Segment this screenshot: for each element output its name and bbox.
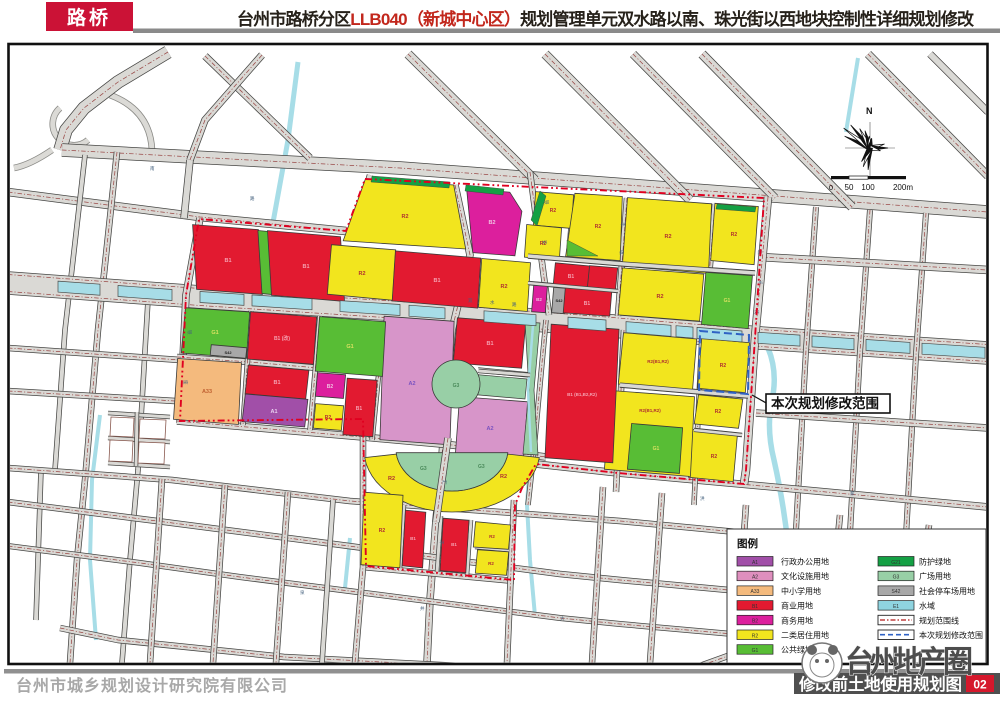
svg-text:水域: 水域 [919, 601, 935, 611]
svg-text:B1: B1 [273, 380, 280, 386]
svg-text:R2: R2 [489, 534, 495, 539]
svg-text:水: 水 [490, 299, 495, 305]
svg-text:S42: S42 [224, 350, 232, 355]
svg-text:R2: R2 [715, 409, 722, 415]
svg-text:E1: E1 [893, 604, 899, 610]
svg-text:安: 安 [541, 240, 548, 245]
svg-text:G21: G21 [891, 560, 901, 566]
svg-text:B2: B2 [752, 619, 758, 625]
svg-text:台州地产圈: 台州地产圈 [845, 645, 973, 679]
svg-text:B1: B1 [302, 264, 309, 270]
svg-text:G3: G3 [478, 464, 485, 470]
svg-text:S42: S42 [892, 589, 901, 595]
svg-text:200m: 200m [893, 183, 913, 192]
svg-text:本次规划修改范围: 本次规划修改范围 [771, 395, 879, 411]
svg-text:二类居住用地: 二类居住用地 [781, 630, 829, 640]
svg-text:R2: R2 [595, 224, 602, 230]
svg-text:G1: G1 [211, 330, 218, 336]
svg-text:A2: A2 [486, 426, 493, 432]
svg-text:洪: 洪 [700, 495, 705, 502]
svg-text:防护绿地: 防护绿地 [919, 557, 951, 567]
svg-text:G3: G3 [893, 575, 900, 581]
svg-text:B1: B1 [486, 341, 493, 347]
svg-text:B1: B1 [433, 278, 440, 284]
svg-text:G1: G1 [653, 446, 660, 452]
svg-text:A33: A33 [751, 589, 760, 595]
svg-text:井: 井 [420, 605, 425, 612]
svg-text:R2: R2 [379, 528, 386, 534]
svg-text:银: 银 [543, 200, 550, 205]
svg-text:路桥: 路桥 [67, 6, 111, 29]
svg-text:A1: A1 [270, 409, 277, 415]
svg-text:A2: A2 [752, 575, 758, 581]
svg-text:B2: B2 [327, 384, 334, 390]
svg-text:A1: A1 [752, 560, 758, 566]
svg-text:R2: R2 [488, 561, 494, 566]
svg-text:R2: R2 [550, 208, 557, 214]
svg-text:G1: G1 [752, 648, 759, 654]
svg-text:南: 南 [150, 165, 155, 171]
svg-text:路: 路 [512, 301, 517, 308]
svg-text:A33: A33 [202, 389, 212, 395]
svg-text:文化设施用地: 文化设施用地 [781, 571, 829, 581]
svg-text:图例: 图例 [737, 537, 758, 550]
svg-text:台州市路桥分区LLB040（新城中心区）规划管理单元双水路以: 台州市路桥分区LLB040（新城中心区）规划管理单元双水路以南、珠光街以西地块控… [237, 9, 975, 29]
svg-text:N: N [866, 106, 873, 116]
svg-text:本次规划修改范围: 本次规划修改范围 [919, 630, 983, 640]
svg-text:G1: G1 [346, 344, 353, 350]
svg-text:B1: B1 [410, 536, 416, 541]
svg-text:中小学用地: 中小学用地 [781, 586, 821, 596]
svg-text:B1: B1 [451, 542, 457, 547]
svg-text:B1 (改): B1 (改) [274, 335, 290, 342]
svg-text:R2: R2 [752, 633, 759, 639]
svg-text:丰: 丰 [619, 222, 626, 227]
svg-text:R2: R2 [388, 476, 395, 482]
svg-text:B1 (B1,B2,R2): B1 (B1,B2,R2) [567, 392, 597, 397]
svg-text:R2: R2 [500, 474, 507, 480]
svg-text:0: 0 [829, 183, 833, 192]
svg-text:R2(B1,R2): R2(B1,R2) [647, 359, 669, 364]
svg-text:R2: R2 [720, 363, 727, 369]
svg-text:R2: R2 [358, 271, 365, 277]
svg-text:台州市城乡规划设计研究院有限公司: 台州市城乡规划设计研究院有限公司 [16, 676, 288, 695]
svg-text:B2: B2 [488, 220, 495, 226]
svg-text:B1: B1 [752, 604, 758, 610]
svg-text:收: 收 [618, 250, 625, 255]
svg-text:家: 家 [850, 490, 855, 496]
svg-text:B1: B1 [584, 301, 591, 307]
svg-text:R2: R2 [731, 232, 738, 238]
svg-text:泉: 泉 [300, 589, 305, 595]
svg-text:路: 路 [250, 195, 255, 202]
svg-text:行政办公用地: 行政办公用地 [781, 557, 829, 567]
svg-text:100: 100 [861, 183, 875, 192]
svg-text:B2: B2 [536, 297, 542, 302]
svg-text:规划范围线: 规划范围线 [919, 615, 959, 625]
svg-text:R2: R2 [656, 294, 663, 300]
svg-text:G1: G1 [724, 298, 731, 304]
svg-text:S42: S42 [555, 298, 563, 303]
svg-text:R2: R2 [401, 214, 408, 220]
svg-text:50: 50 [845, 183, 854, 192]
svg-text:B1: B1 [356, 406, 363, 412]
svg-text:A2: A2 [408, 381, 415, 387]
svg-text:B1: B1 [224, 258, 231, 264]
svg-text:R2: R2 [500, 284, 507, 290]
svg-text:广场用地: 广场用地 [919, 571, 951, 581]
svg-text:汇: 汇 [441, 480, 448, 485]
svg-text:R2(B1,R2): R2(B1,R2) [639, 408, 661, 413]
svg-text:社会停车场用地: 社会停车场用地 [919, 586, 975, 596]
svg-text:G3: G3 [453, 383, 460, 389]
svg-text:B1: B1 [568, 274, 575, 280]
svg-text:R2: R2 [711, 454, 718, 460]
svg-text:座: 座 [182, 380, 189, 385]
svg-text:02: 02 [973, 678, 987, 692]
svg-text:商业用地: 商业用地 [781, 601, 813, 611]
svg-text:商务用地: 商务用地 [781, 615, 813, 625]
svg-text:银: 银 [186, 330, 193, 335]
svg-text:丰: 丰 [438, 540, 445, 545]
svg-text:G3: G3 [420, 466, 427, 472]
svg-text:大: 大 [560, 615, 565, 622]
svg-text:R2: R2 [664, 234, 671, 240]
